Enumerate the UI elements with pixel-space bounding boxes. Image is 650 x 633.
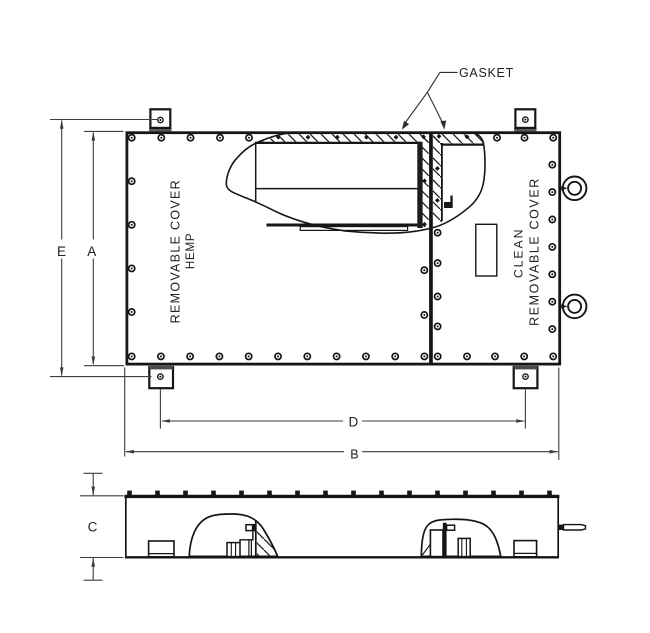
svg-text:E: E bbox=[57, 244, 66, 259]
svg-text:GASKET: GASKET bbox=[459, 66, 514, 80]
svg-text:B: B bbox=[350, 448, 358, 462]
svg-text:A: A bbox=[87, 244, 96, 259]
svg-text:D: D bbox=[349, 415, 359, 430]
svg-text:HEMP: HEMP bbox=[183, 233, 197, 269]
svg-text:C: C bbox=[88, 520, 98, 535]
svg-text:REMOVABLE COVER: REMOVABLE COVER bbox=[169, 179, 183, 323]
svg-text:CLEAN: CLEAN bbox=[512, 228, 526, 279]
svg-text:REMOVABLE COVER: REMOVABLE COVER bbox=[528, 177, 542, 326]
